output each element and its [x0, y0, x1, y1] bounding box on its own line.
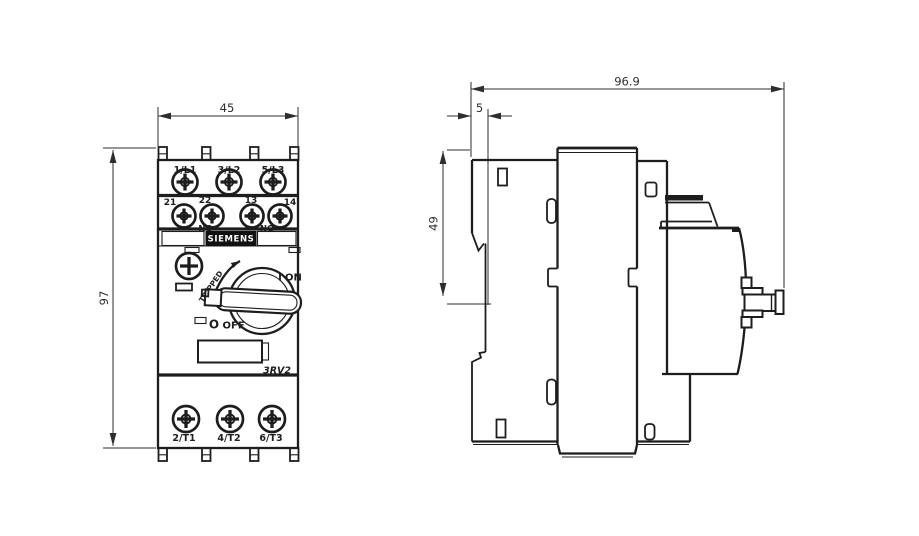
canvas-background: [0, 0, 919, 536]
dimension-value: 45: [220, 101, 235, 115]
off-position-symbol: O: [209, 318, 219, 332]
cover-seal: [665, 195, 703, 201]
dimension-drawing-svg: 45 97 1/L1 3/L: [0, 0, 919, 536]
terminal-label: 4/T2: [217, 433, 240, 444]
technical-drawing-page: 45 97 1/L1 3/L: [0, 0, 919, 536]
handle-end-cap: [776, 291, 784, 315]
terminal-label: 2/T1: [172, 433, 195, 444]
on-position-label: ON: [285, 273, 302, 284]
band-window: [162, 232, 204, 246]
brand-logo: SIEMENS: [208, 235, 255, 245]
dimension-value: 96.9: [614, 75, 640, 89]
terminal-label: 6/T3: [259, 433, 282, 444]
off-position-label: OFF: [223, 321, 245, 332]
cover-seal: [732, 229, 739, 233]
dimension-value: 97: [97, 291, 111, 306]
aux-terminal-label: 21: [164, 198, 177, 208]
dimension-value: 5: [476, 101, 483, 115]
model-label: 3RV2: [263, 366, 291, 377]
on-position-symbol: I: [278, 273, 282, 284]
dimension-value: 49: [427, 216, 441, 231]
handle-pivot: [205, 289, 222, 306]
rating-label-plate: [198, 341, 262, 363]
band-window: [258, 232, 297, 246]
brand-band: SIEMENS: [162, 231, 296, 246]
